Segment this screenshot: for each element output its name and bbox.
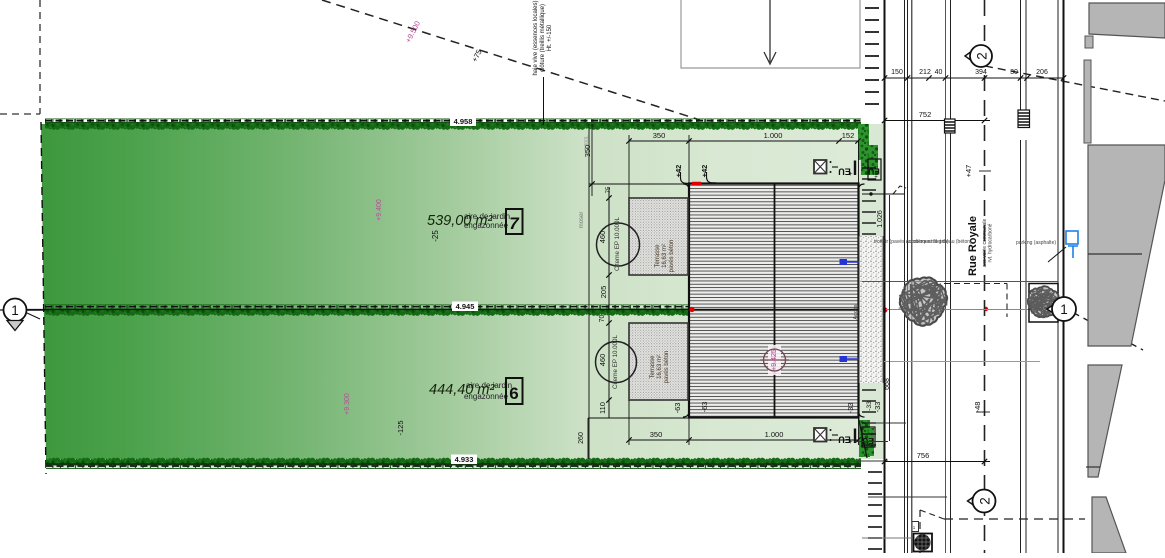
svg-text:accotement filet d'eau (béton): accotement filet d'eau (béton) bbox=[906, 239, 972, 245]
svg-text:150: 150 bbox=[891, 69, 903, 76]
svg-text:Terrasse: Terrasse bbox=[650, 355, 656, 379]
svg-text:+42: +42 bbox=[674, 165, 683, 178]
svg-text:4.945: 4.945 bbox=[456, 302, 475, 311]
svg-text:394: 394 bbox=[975, 69, 987, 76]
svg-text:-125: -125 bbox=[396, 420, 405, 435]
svg-text:clôture (treillis métallique): clôture (treillis métallique) bbox=[540, 4, 546, 72]
svg-text:engazonnée: engazonnée bbox=[464, 221, 509, 230]
svg-text:16,63 m²: 16,63 m² bbox=[662, 244, 668, 268]
svg-text:40: 40 bbox=[935, 69, 943, 76]
svg-text:1: 1 bbox=[11, 303, 19, 318]
svg-text:205: 205 bbox=[599, 286, 608, 299]
svg-text:2: 2 bbox=[975, 52, 990, 60]
svg-text:350: 350 bbox=[653, 131, 666, 140]
svg-text:752: 752 bbox=[919, 110, 932, 119]
svg-text:Terrasse: Terrasse bbox=[655, 244, 661, 268]
svg-text:212: 212 bbox=[919, 69, 931, 76]
svg-text:aire de jardin: aire de jardin bbox=[464, 212, 510, 221]
svg-text:4.933: 4.933 bbox=[455, 455, 474, 464]
svg-text:1.026: 1.026 bbox=[877, 210, 884, 228]
svg-text:1.000: 1.000 bbox=[765, 430, 784, 439]
svg-text:+9.400: +9.400 bbox=[376, 199, 383, 221]
svg-text:Citerne EP 10.000L: Citerne EP 10.000L bbox=[612, 335, 619, 389]
svg-text:75: 75 bbox=[606, 186, 612, 193]
svg-text:110: 110 bbox=[598, 402, 607, 414]
svg-text:rvt. hydrocarboné: rvt. hydrocarboné bbox=[988, 223, 994, 262]
svg-text:350: 350 bbox=[583, 145, 592, 158]
svg-text:parking (asphalte): parking (asphalte) bbox=[1016, 240, 1056, 246]
svg-text:pavés béton: pavés béton bbox=[664, 351, 670, 384]
svg-text:460: 460 bbox=[598, 354, 607, 367]
svg-text:-25: -25 bbox=[431, 230, 440, 242]
svg-text:+42: +42 bbox=[700, 165, 709, 178]
svg-text:-33: -33 bbox=[846, 403, 855, 414]
svg-text:350: 350 bbox=[650, 430, 663, 439]
svg-text:+9.425: +9.425 bbox=[771, 349, 778, 371]
svg-text:-33: -33 bbox=[866, 401, 873, 411]
svg-text:1.000: 1.000 bbox=[764, 131, 783, 140]
svg-text:260: 260 bbox=[578, 432, 585, 444]
svg-text:-33: -33 bbox=[873, 402, 882, 413]
svg-text:-48: -48 bbox=[973, 402, 982, 413]
svg-text:+: + bbox=[848, 171, 852, 178]
svg-text:7: 7 bbox=[509, 214, 520, 233]
svg-text:+: + bbox=[874, 175, 878, 181]
svg-text:668: 668 bbox=[884, 378, 891, 390]
svg-text:70: 70 bbox=[599, 315, 606, 323]
svg-text:460: 460 bbox=[598, 231, 607, 244]
svg-text:756: 756 bbox=[917, 451, 930, 460]
svg-text:1: 1 bbox=[1060, 302, 1068, 317]
svg-text:2: 2 bbox=[978, 497, 993, 505]
svg-text:Accès: Accès bbox=[853, 304, 859, 319]
svg-text:haie vive (essences locales): haie vive (essences locales) bbox=[533, 0, 539, 75]
svg-text:+: + bbox=[848, 439, 852, 446]
svg-text:-63: -63 bbox=[673, 403, 682, 414]
svg-text:+9.300: +9.300 bbox=[344, 393, 351, 415]
svg-text:6: 6 bbox=[509, 384, 518, 403]
svg-text:Ht. +/-150: Ht. +/-150 bbox=[547, 24, 553, 51]
svg-text:Citerne EP 10.000L: Citerne EP 10.000L bbox=[614, 217, 621, 271]
svg-text:152: 152 bbox=[842, 131, 855, 140]
svg-text:pavés béton: pavés béton bbox=[669, 240, 675, 273]
svg-text:engazonnée: engazonnée bbox=[464, 392, 509, 401]
svg-text:Rue Royale: Rue Royale bbox=[967, 216, 979, 276]
svg-text:-63: -63 bbox=[700, 402, 709, 413]
svg-text:30: 30 bbox=[1010, 69, 1018, 76]
svg-text:+47: +47 bbox=[964, 165, 973, 178]
svg-text:206: 206 bbox=[1036, 69, 1048, 76]
svg-text:16,63 m²: 16,63 m² bbox=[657, 355, 663, 379]
svg-text:moser: moser bbox=[579, 212, 585, 229]
svg-text:4.958: 4.958 bbox=[454, 117, 473, 126]
